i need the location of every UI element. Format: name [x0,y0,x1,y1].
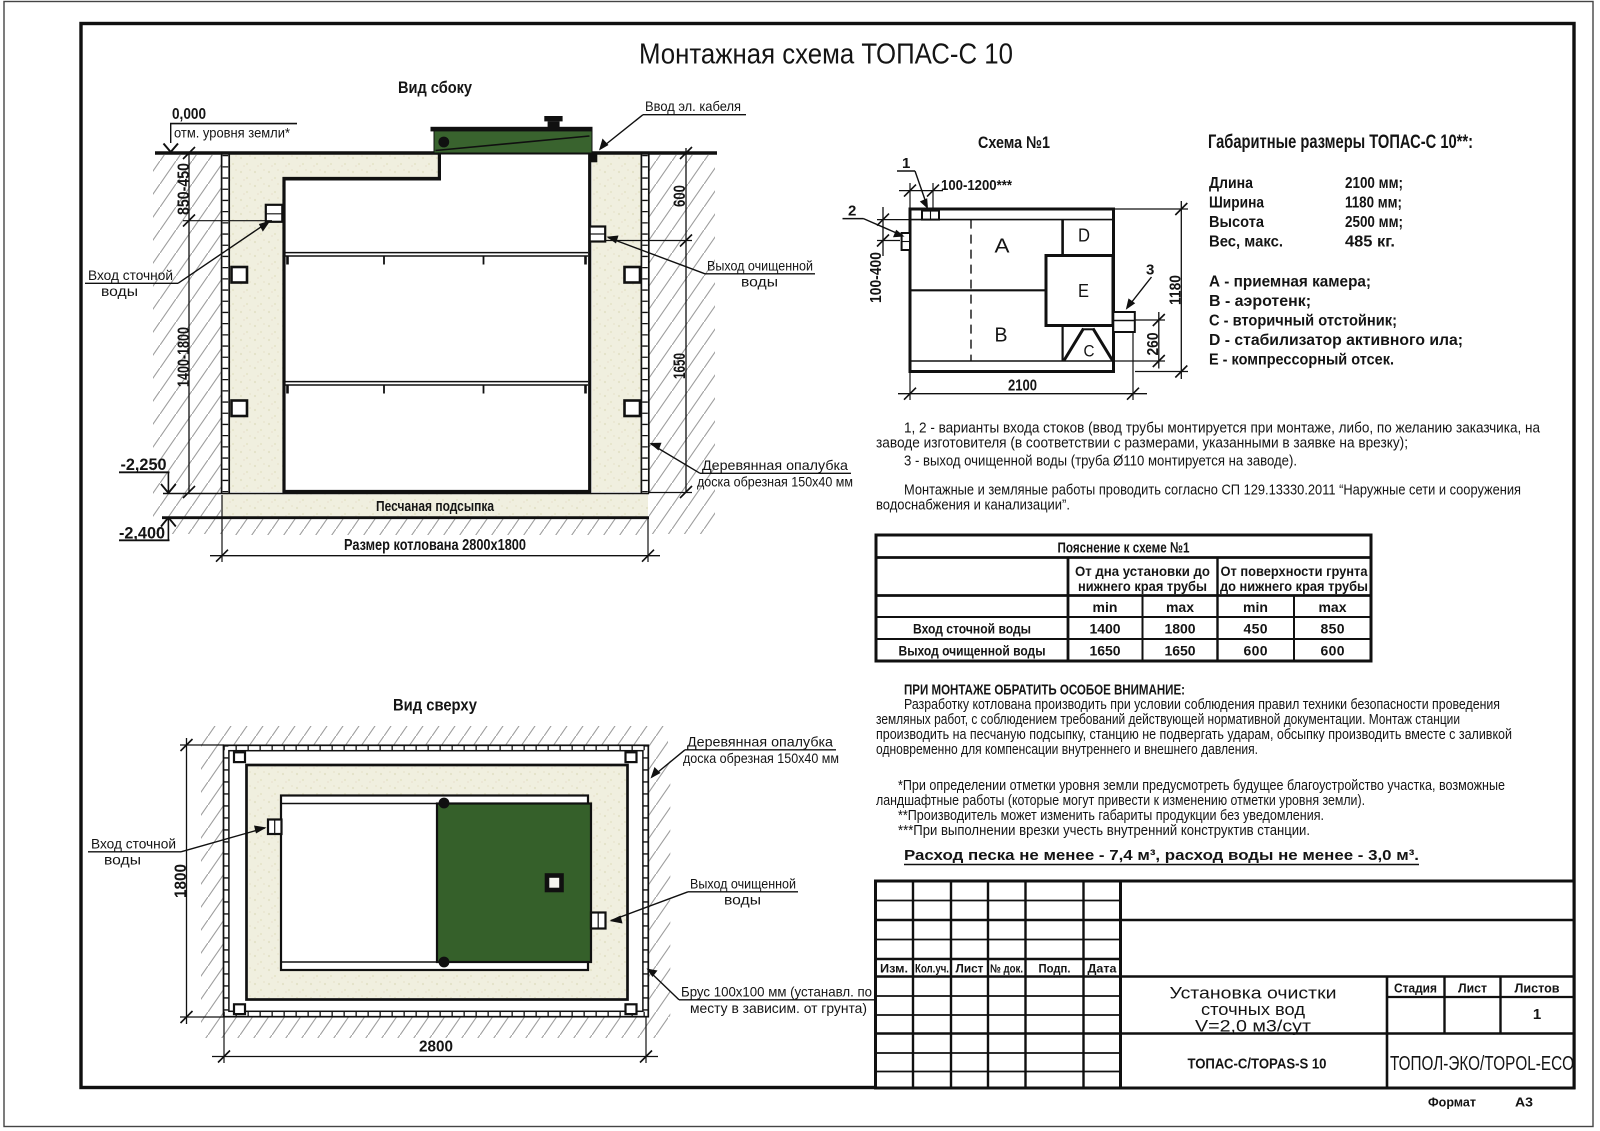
svg-text:850-450: 850-450 [174,163,193,215]
svg-text:B: B [995,325,1008,347]
svg-text:D - стабилизатор активного ила: D - стабилизатор активного ила; [1209,332,1463,349]
svg-text:Формат: Формат [1428,1095,1476,1110]
svg-text:***При выполнении врезки учест: ***При выполнении врезки учесть внутренн… [898,822,1310,839]
svg-text:1180 мм;: 1180 мм; [1345,195,1402,212]
svg-text:Ввод эл. кабеля: Ввод эл. кабеля [645,98,741,114]
svg-text:Дата: Дата [1088,962,1117,976]
svg-text:E: E [1078,281,1089,301]
svg-text:260: 260 [1145,332,1162,355]
svg-text:Лист: Лист [1458,981,1487,996]
svg-text:1: 1 [902,155,910,172]
svg-text:месту в зависим. от грунта): месту в зависим. от грунта) [690,1000,867,1016]
svg-text:V=2,0 м3/сут: V=2,0 м3/сут [1195,1017,1311,1036]
svg-text:Брус 100х100 мм (устанавл. по: Брус 100х100 мм (устанавл. по [681,984,872,1000]
svg-text:Длина: Длина [1209,175,1253,192]
svg-text:доска обрезная 150х40 мм: доска обрезная 150х40 мм [683,750,839,766]
svg-text:Выход очищенной: Выход очищенной [690,876,796,892]
svg-text:одновременно для компенсации в: одновременно для компенсации внутреннего… [876,741,1258,758]
svg-text:водоснабжения и канализации”.: водоснабжения и канализации”. [876,497,1070,514]
svg-text:100-1200***: 100-1200*** [941,177,1012,194]
svg-text:2100: 2100 [1008,378,1037,395]
svg-text:В - аэротенк;: В - аэротенк; [1209,293,1311,310]
svg-text:С - вторичный отстойник;: С - вторичный отстойник; [1209,313,1397,330]
svg-text:Схема №1: Схема №1 [978,133,1050,152]
svg-text:до нижнего края трубы: до нижнего края трубы [1220,578,1368,594]
svg-text:Лист: Лист [956,962,984,976]
svg-text:600: 600 [1244,643,1268,659]
svg-text:C: C [1084,342,1095,361]
svg-text:Ширина: Ширина [1209,195,1264,212]
svg-text:отм. уровня земли*: отм. уровня земли* [174,125,291,141]
svg-text:Вид сбоку: Вид сбоку [398,78,472,97]
svg-text:100-400: 100-400 [868,252,885,303]
svg-text:ТОПОЛ-ЭКО/TOPOL-ECO: ТОПОЛ-ЭКО/TOPOL-ECO [1390,1053,1574,1075]
svg-text:1400: 1400 [1090,621,1121,637]
svg-text:Расход песка не менее - 7,4 м³: Расход песка не менее - 7,4 м³, расход в… [904,847,1419,864]
svg-text:Вход сточной воды: Вход сточной воды [913,621,1031,637]
svg-text:max: max [1166,599,1194,615]
svg-text:Выход очищенной: Выход очищенной [707,258,813,274]
svg-text:450: 450 [1244,621,1268,637]
svg-text:Высота: Высота [1209,214,1264,231]
svg-text:нижнего края трубы: нижнего края трубы [1078,578,1207,594]
svg-text:Е - компрессорный отсек.: Е - компрессорный отсек. [1209,352,1394,369]
svg-text:min: min [1243,599,1268,615]
svg-text:воды: воды [104,852,141,868]
svg-text:2500 мм;: 2500 мм; [1345,214,1403,231]
svg-text:1: 1 [1533,1006,1541,1023]
svg-text:Вид сверху: Вид сверху [393,696,477,715]
svg-text:3: 3 [1146,262,1154,279]
svg-text:1800: 1800 [171,864,190,898]
svg-text:Пояснение к схеме №1: Пояснение к схеме №1 [1058,540,1190,557]
svg-text:min: min [1093,599,1118,615]
svg-text:Размер котлована 2800х1800: Размер котлована 2800х1800 [344,537,526,554]
svg-text:Деревянная опалубка: Деревянная опалубка [702,457,848,473]
svg-text:Листов: Листов [1515,981,1560,996]
svg-text:От дна установки до: От дна установки до [1075,563,1210,579]
svg-text:Габаритные размеры ТОПАС-С 10*: Габаритные размеры ТОПАС-С 10**: [1208,132,1473,153]
svg-text:Вход сточной: Вход сточной [91,836,176,852]
svg-text:воды: воды [724,892,761,908]
svg-text:2800: 2800 [419,1039,453,1056]
svg-text:A: A [995,236,1011,258]
svg-text:А3: А3 [1515,1095,1533,1110]
svg-text:От поверхности грунта: От поверхности грунта [1221,563,1368,579]
svg-text:А - приемная камера;: А - приемная камера; [1209,274,1371,291]
svg-text:воды: воды [101,283,138,299]
svg-text:850: 850 [1321,621,1345,637]
svg-text:Изм.: Изм. [880,962,908,976]
svg-text:№ док.: № док. [990,962,1023,976]
svg-text:3 - выход очищенной воды (труб: 3 - выход очищенной воды (труба Ø110 мон… [904,453,1297,470]
svg-text:0,000: 0,000 [172,106,206,123]
svg-text:воды: воды [741,274,778,290]
svg-text:max: max [1318,599,1346,615]
svg-text:-2,250: -2,250 [121,455,167,474]
svg-text:1400-1800: 1400-1800 [174,327,193,387]
svg-text:1800: 1800 [1165,621,1196,637]
svg-text:485 кг.: 485 кг. [1345,234,1395,251]
svg-text:1180: 1180 [1168,275,1185,305]
svg-text:600: 600 [1321,643,1345,659]
svg-text:600: 600 [670,185,689,207]
svg-text:Выход очищенной воды: Выход очищенной воды [899,643,1046,659]
svg-text:доска обрезная 150х40 мм: доска обрезная 150х40 мм [697,474,853,490]
svg-text:Стадия: Стадия [1394,981,1437,996]
svg-text:Монтажная схема ТОПАС-С 10: Монтажная схема ТОПАС-С 10 [639,39,1013,71]
svg-text:2: 2 [848,203,856,220]
svg-text:Подп.: Подп. [1039,962,1071,976]
svg-text:Вход сточной: Вход сточной [88,267,173,283]
svg-text:1650: 1650 [670,353,689,379]
svg-text:Вес, макс.: Вес, макс. [1209,234,1283,251]
svg-text:ТОПАС-С/TOPAS-S 10: ТОПАС-С/TOPAS-S 10 [1188,1056,1327,1073]
svg-text:Деревянная опалубка: Деревянная опалубка [687,734,833,750]
svg-text:1650: 1650 [1090,643,1121,659]
svg-text:D: D [1078,226,1090,246]
svg-text:2100 мм;: 2100 мм; [1345,175,1403,192]
svg-text:1650: 1650 [1165,643,1196,659]
svg-text:Кол.уч.: Кол.уч. [915,962,949,976]
svg-text:Песчаная подсыпка: Песчаная подсыпка [376,498,495,515]
svg-text:заводе изготовителя (в соответ: заводе изготовителя (в соответствии с ра… [876,435,1408,452]
